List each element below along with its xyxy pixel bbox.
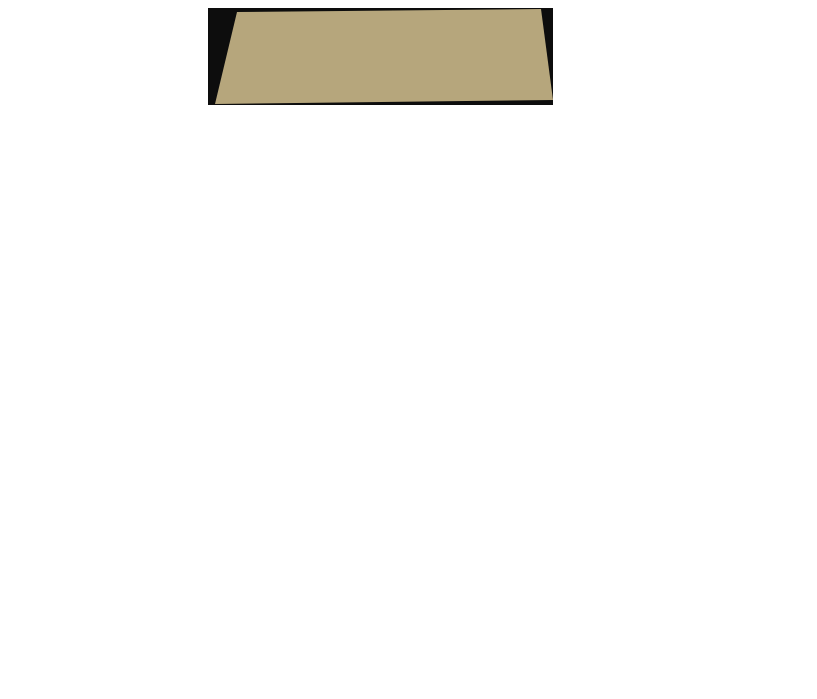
panel-environment-3 — [0, 114, 817, 126]
panel-environment-1-frames — [208, 2, 553, 105]
maze-frame — [208, 2, 553, 105]
top-row — [0, 2, 817, 112]
panel-environment-1 — [208, 2, 553, 112]
figure-page — [0, 0, 817, 126]
maze-render — [208, 8, 553, 105]
